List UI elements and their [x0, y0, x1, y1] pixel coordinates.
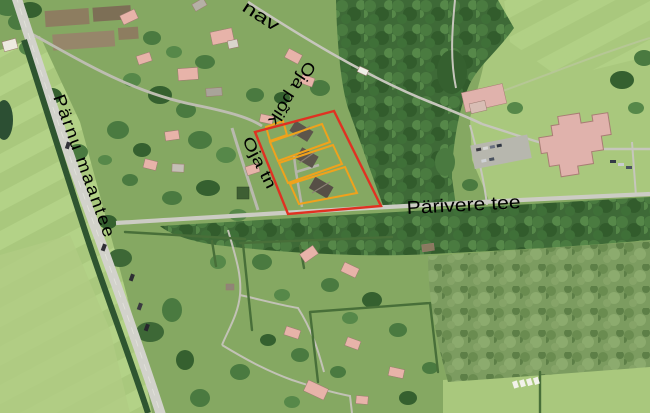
- house-roof: [165, 130, 180, 141]
- shed-roof: [226, 284, 234, 290]
- house-wing: [227, 39, 238, 49]
- shed-roof: [172, 164, 184, 172]
- scrub-southeast: [428, 241, 650, 382]
- map-canvas[interactable]: Pärnu maantee Pärivere tee Oja põik Oja …: [0, 0, 650, 413]
- house-roof: [356, 395, 369, 404]
- house-roof: [178, 67, 199, 80]
- green-building: [237, 187, 249, 199]
- shed-roof: [422, 243, 435, 252]
- map-viewport[interactable]: Pärnu maantee Pärivere tee Oja põik Oja …: [0, 0, 650, 413]
- barn-roof: [206, 87, 223, 96]
